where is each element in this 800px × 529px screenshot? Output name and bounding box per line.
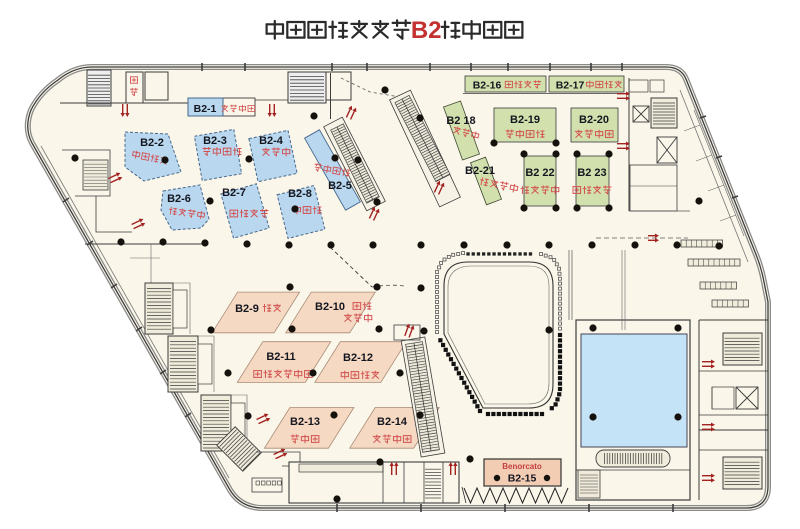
- svg-text:B2-13: B2-13: [290, 416, 320, 428]
- svg-text:B2 18: B2 18: [446, 115, 475, 127]
- svg-text:B2-17: B2-17: [556, 80, 585, 92]
- svg-text:B2-3: B2-3: [203, 135, 227, 147]
- svg-text:B2: B2: [411, 17, 442, 44]
- svg-text:B2-4: B2-4: [259, 135, 284, 147]
- svg-text:B2-9: B2-9: [235, 303, 259, 315]
- svg-text:B2-19: B2-19: [510, 114, 540, 126]
- svg-text:B2-21: B2-21: [465, 165, 495, 177]
- svg-text:B2-5: B2-5: [328, 180, 352, 192]
- svg-text:B2-6: B2-6: [167, 193, 191, 205]
- svg-text:B2-16: B2-16: [473, 80, 502, 92]
- svg-text:B2-11: B2-11: [266, 351, 295, 363]
- svg-text:B2-14: B2-14: [377, 416, 408, 428]
- svg-text:B2-1: B2-1: [194, 103, 217, 115]
- svg-text:B2 23: B2 23: [577, 167, 606, 179]
- svg-text:B2-8: B2-8: [288, 188, 312, 200]
- svg-text:Benorcato: Benorcato: [502, 462, 542, 471]
- svg-text:B2-20: B2-20: [579, 114, 609, 126]
- svg-text:B2-10: B2-10: [315, 301, 345, 313]
- svg-text:B2-12: B2-12: [343, 352, 373, 364]
- svg-text:B2-2: B2-2: [140, 137, 164, 149]
- svg-text:B2-15: B2-15: [508, 473, 537, 485]
- svg-text:B2 22: B2 22: [525, 167, 554, 179]
- svg-text:B2-7: B2-7: [222, 187, 246, 199]
